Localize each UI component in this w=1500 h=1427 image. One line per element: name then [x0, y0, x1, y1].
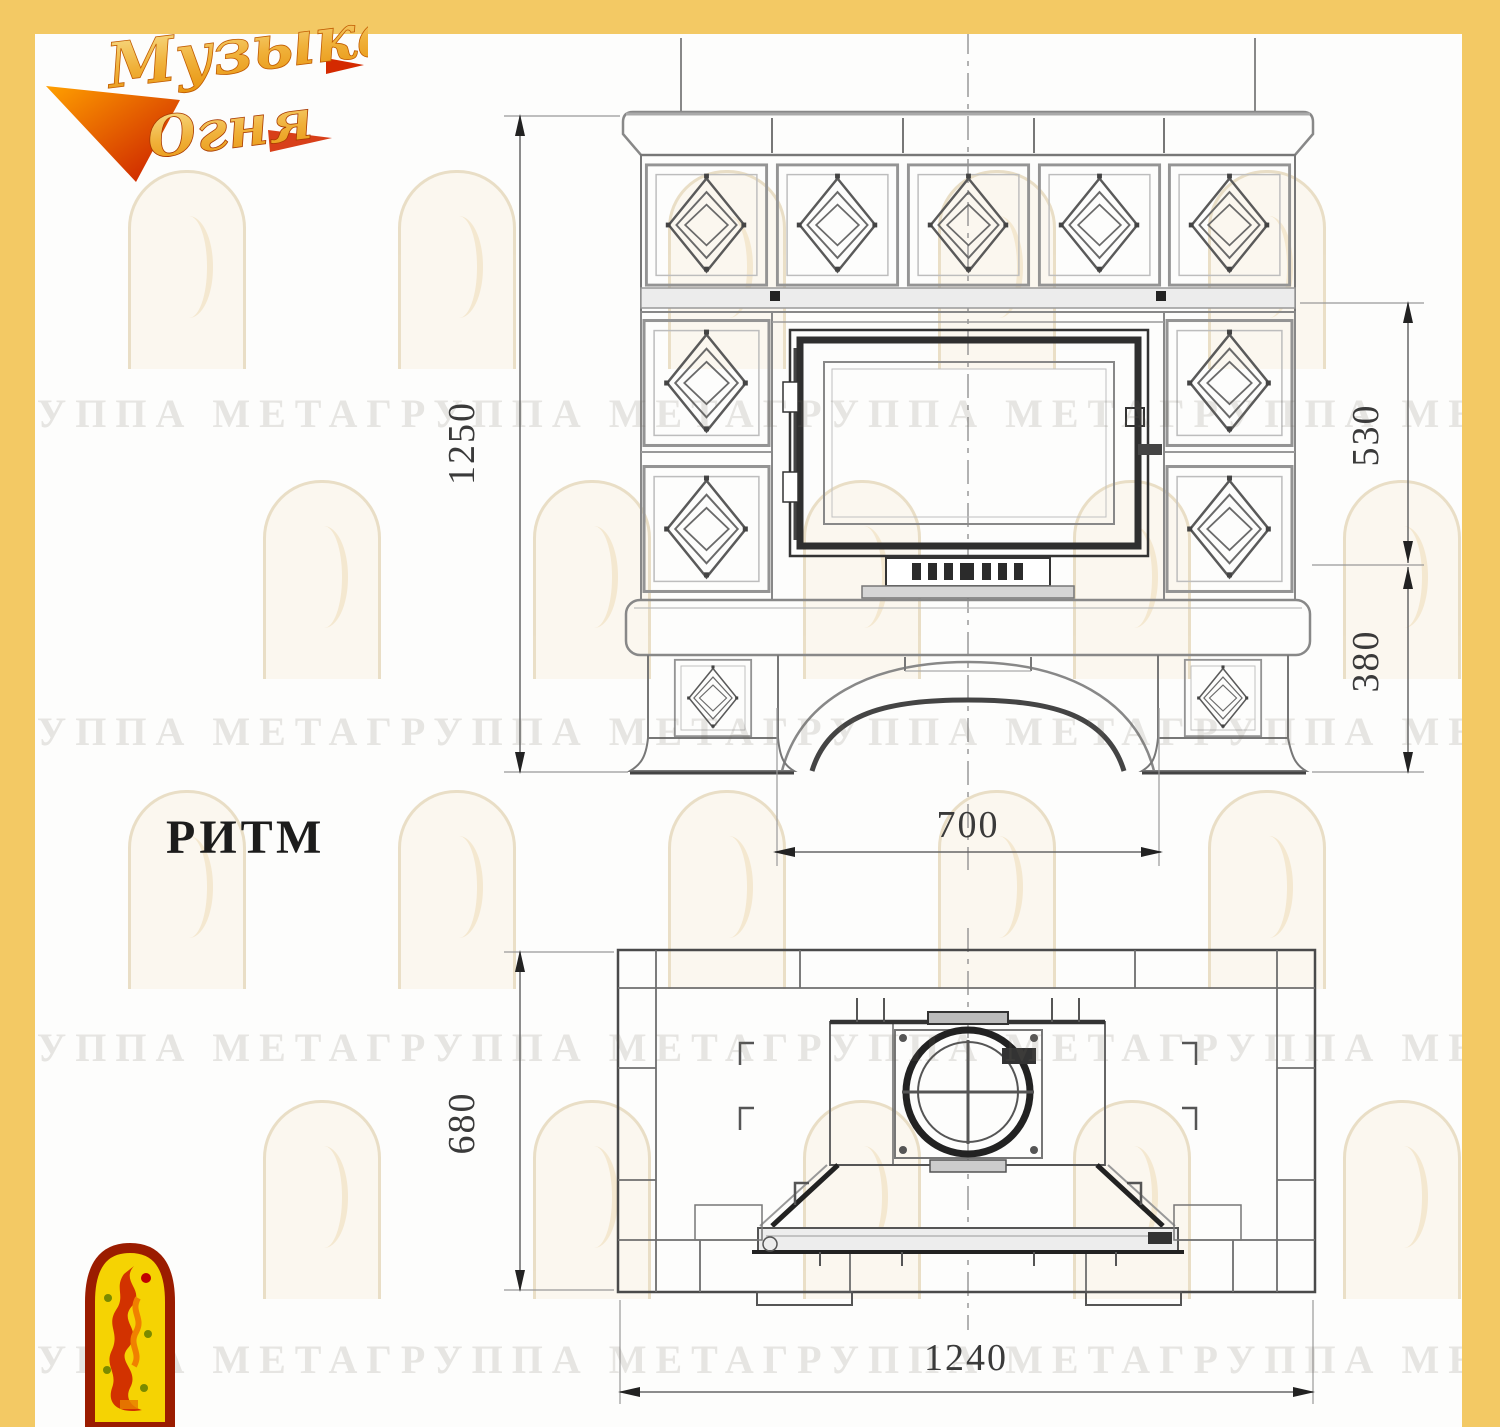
brand-logo: Музыка Огня — [28, 8, 368, 198]
watermark-text-row: ГРУППА МЕТАГРУППА МЕТАГРУППА МЕТАГРУППА … — [0, 1024, 1500, 1070]
watermark-text-row: ГРУППА МЕТАГРУППА МЕТАГРУППА МЕТАГРУППА … — [0, 1336, 1500, 1382]
logo-text-line1: Музыка — [101, 8, 368, 103]
firebox-door — [772, 312, 1164, 600]
plan-view — [618, 928, 1315, 1330]
frame-band-right — [1462, 0, 1500, 1427]
dim-label-width: 1240 — [896, 1336, 1036, 1380]
right-column-tiles — [1164, 312, 1295, 600]
left-column-tiles — [641, 312, 772, 600]
dim-label-lower: 380 — [1344, 601, 1388, 721]
watermark-text-row: ГРУППА МЕТАГРУППА МЕТАГРУППА МЕТАГРУППА … — [0, 390, 1500, 436]
dim-height-1250 — [504, 114, 628, 774]
dim-label-upper: 530 — [1344, 375, 1388, 495]
dim-label-height: 1250 — [440, 373, 484, 513]
dim-depth-680 — [504, 950, 614, 1292]
vent-grille — [862, 558, 1074, 598]
plan-foot-tab — [1086, 1292, 1181, 1305]
door-latch — [1138, 444, 1162, 455]
frame-band-left — [0, 0, 35, 1427]
watermark-text-row: ГРУППА МЕТАГРУППА МЕТАГРУППА МЕТАГРУППА … — [0, 708, 1500, 754]
dim-label-opening: 700 — [898, 803, 1038, 847]
door-hinge — [783, 472, 798, 502]
plan-foot-tab — [757, 1292, 852, 1305]
model-name-label: РИТМ — [166, 810, 325, 865]
frieze-ledge — [641, 288, 1295, 308]
flame-accent — [133, 1298, 138, 1366]
flame-dancer-logo — [80, 1238, 180, 1427]
page: ГРУППА МЕТАГРУППА МЕТАГРУППА МЕТАГРУППА … — [0, 0, 1500, 1427]
dim-label-depth: 680 — [440, 1053, 484, 1193]
